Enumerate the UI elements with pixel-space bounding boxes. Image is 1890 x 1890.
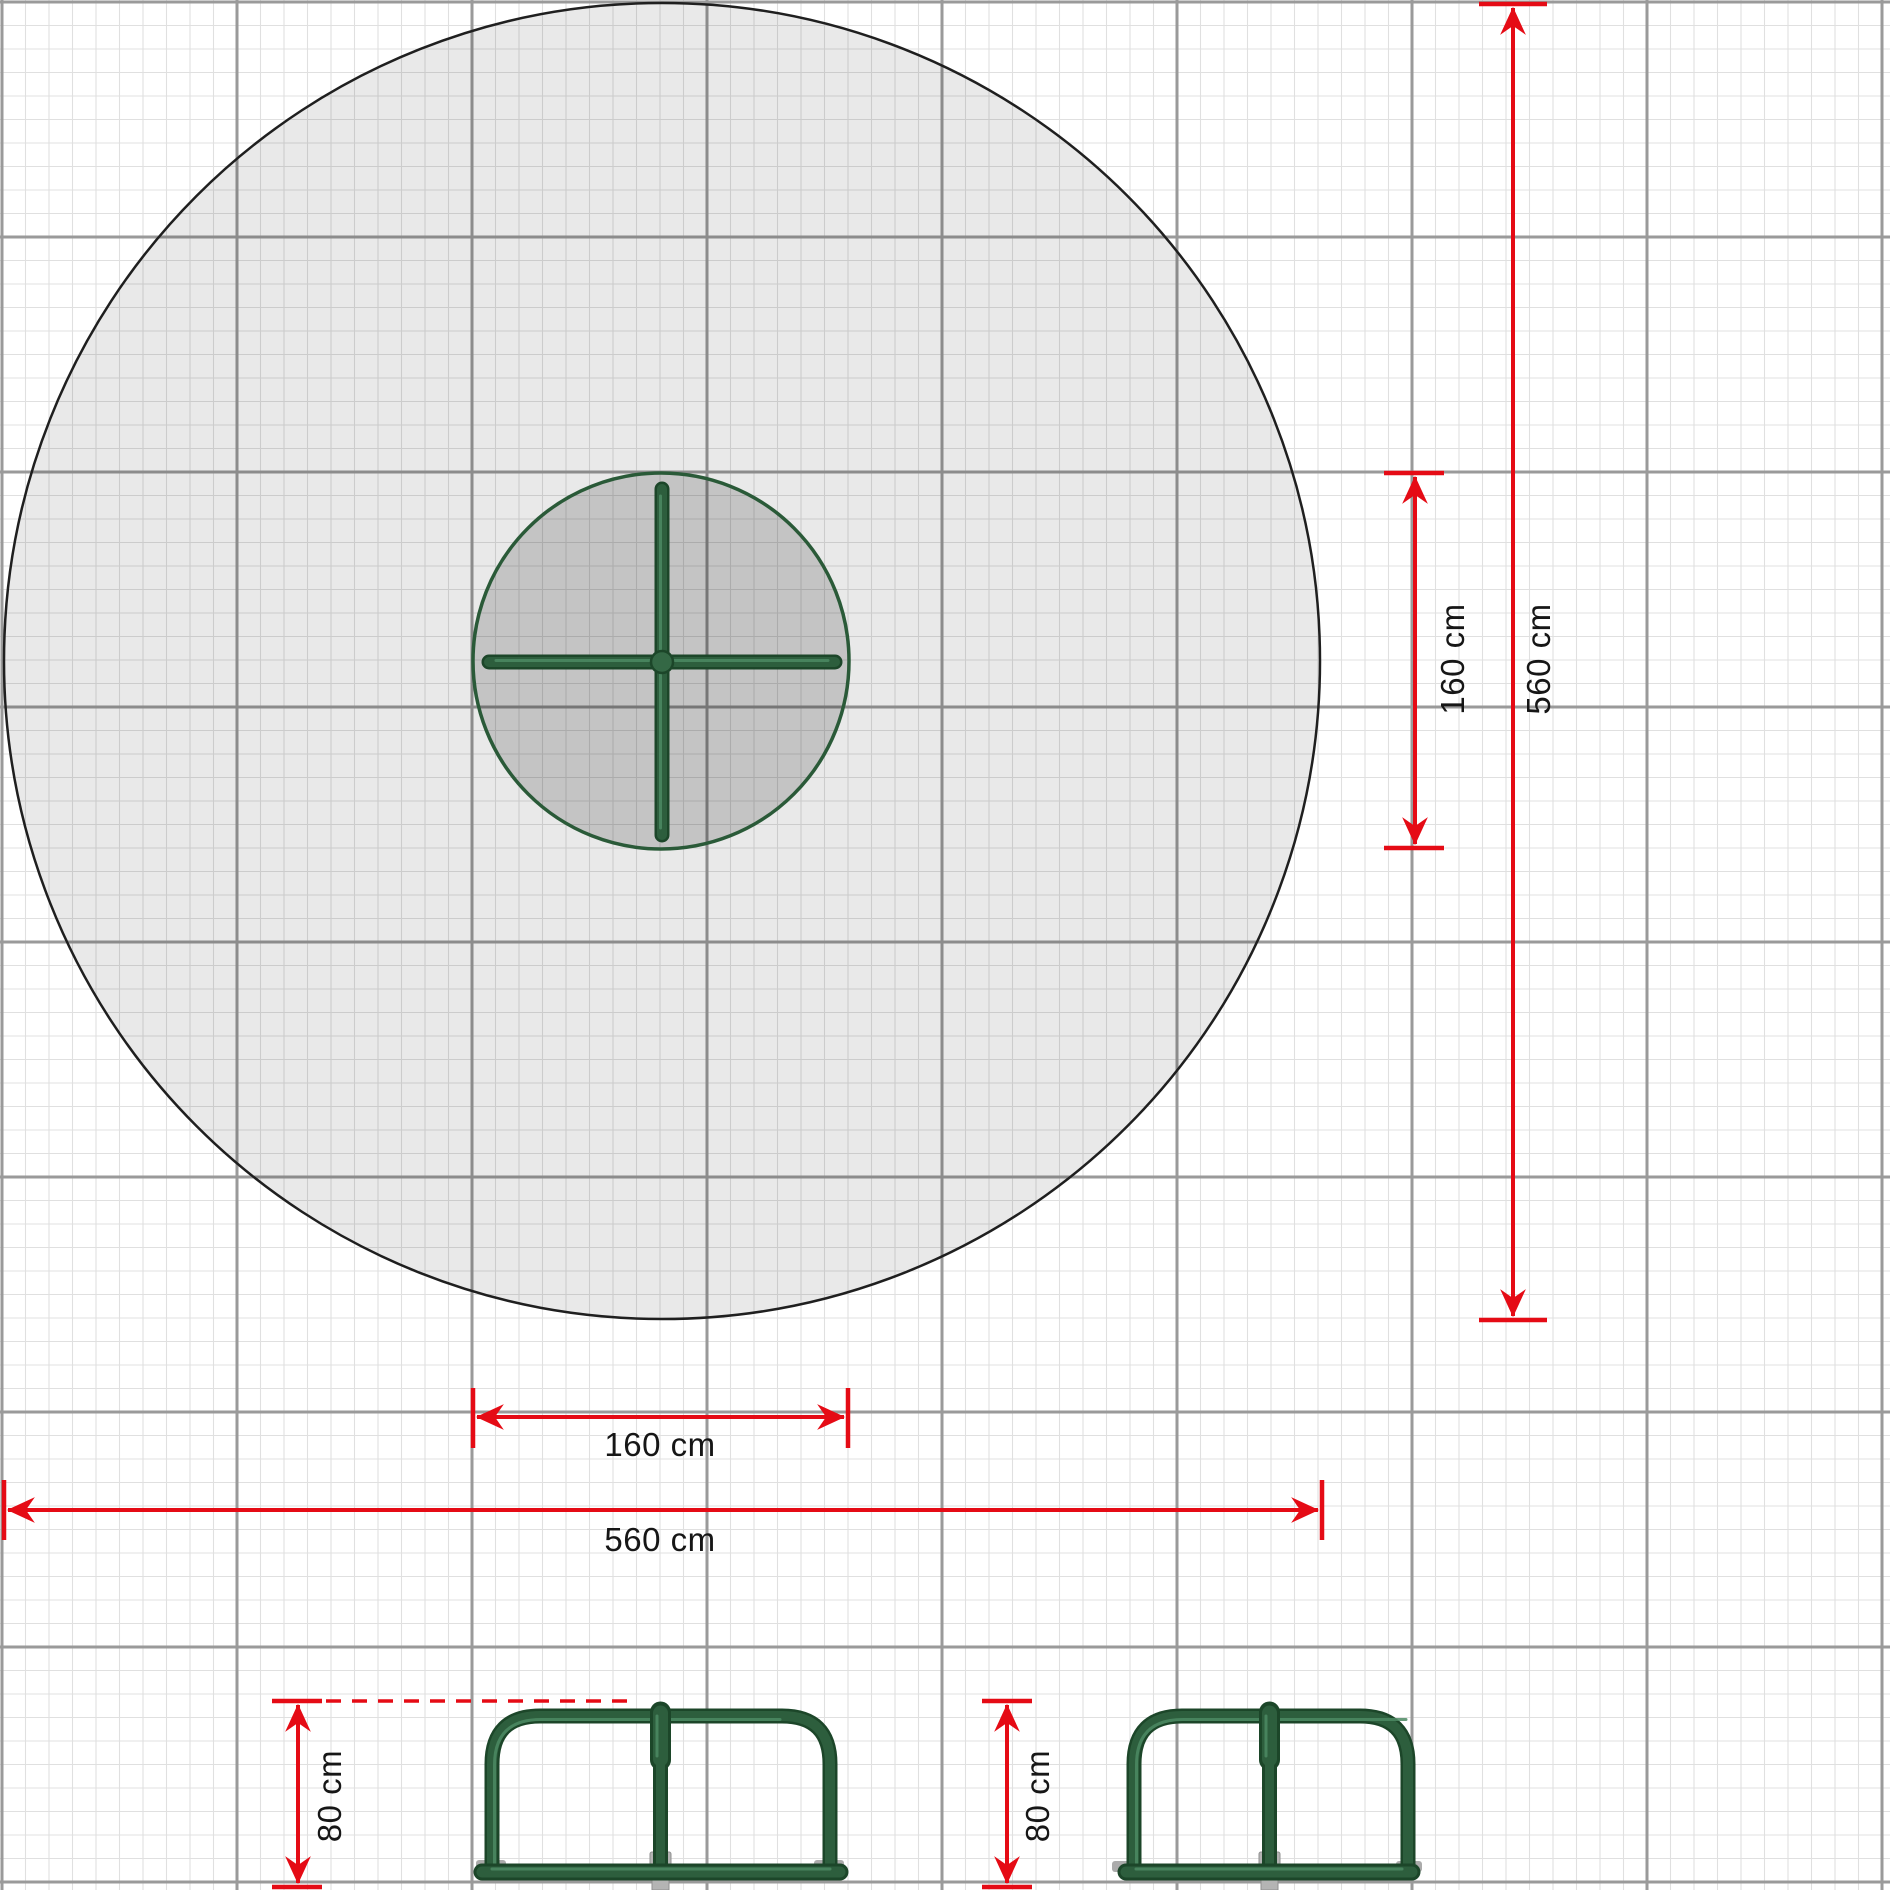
drawing-canvas: 160 cm 560 cm 160 cm 560 cm xyxy=(0,0,1890,1890)
dim-label-equipment-width: 160 cm xyxy=(604,1426,715,1463)
dim-label-safety-zone-width: 560 cm xyxy=(604,1521,715,1558)
dim-label-equipment-height: 160 cm xyxy=(1434,603,1471,714)
center-hub xyxy=(651,651,673,673)
plan-view xyxy=(4,3,1320,1319)
dim-label-side-height: 80 cm xyxy=(1019,1750,1056,1842)
dim-label-safety-zone-height: 560 cm xyxy=(1520,603,1557,714)
dim-label-front-height: 80 cm xyxy=(311,1750,348,1842)
drawing-page: 160 cm 560 cm 160 cm 560 cm xyxy=(0,0,1890,1890)
